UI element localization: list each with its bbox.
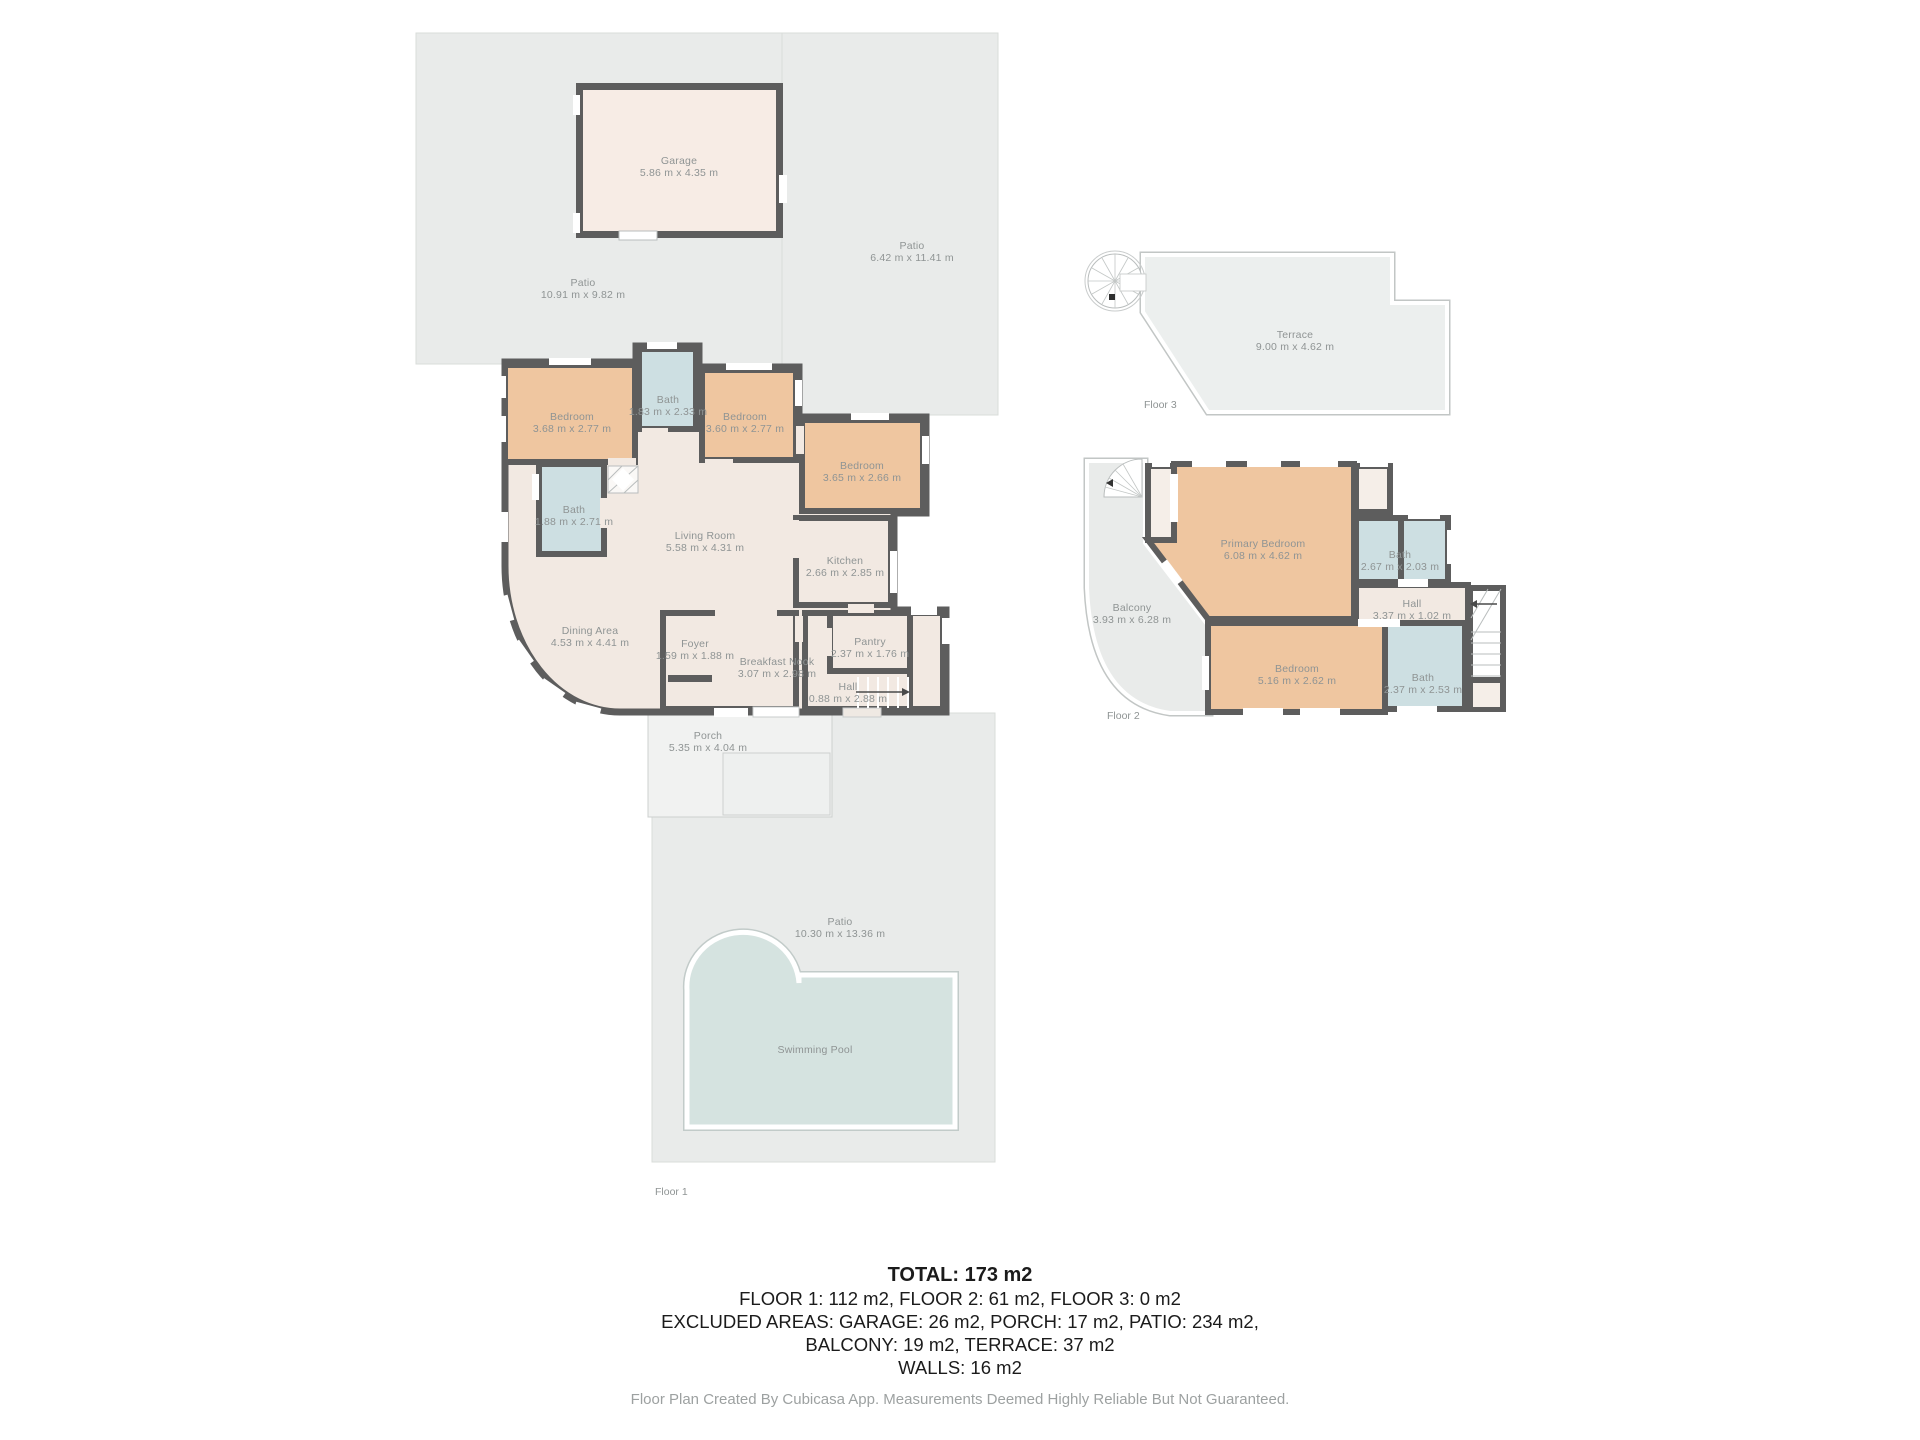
room-label-primary-bedroom: Primary Bedroom6.08 m x 4.62 m <box>1221 538 1306 562</box>
room-label-balcony: Balcony3.93 m x 6.28 m <box>1093 602 1171 626</box>
floor2-stairs <box>1468 588 1504 709</box>
room-label-kitchen: Kitchen2.66 m x 2.85 m <box>806 555 884 579</box>
room-label-dining-area: Dining Area4.53 m x 4.41 m <box>551 625 629 649</box>
room-label-hall: Hall0.88 m x 2.88 m <box>809 681 887 705</box>
floor2-caption: Floor 2 <box>1107 710 1140 722</box>
room-label-patio-ne: Patio6.42 m x 11.41 m <box>870 240 954 264</box>
closet-room <box>1356 466 1390 512</box>
disclaimer-text: Floor Plan Created By Cubicasa App. Meas… <box>0 1391 1920 1408</box>
room-label-bedroom2: Bedroom5.16 m x 2.62 m <box>1258 663 1336 687</box>
room-label-bath-w: Bath1.88 m x 2.71 m <box>535 504 613 528</box>
room-label-swimming-pool: Swimming Pool <box>778 1044 853 1056</box>
room-label-bath-upper: Bath2.67 m x 2.03 m <box>1361 549 1439 573</box>
room-label-bath-n: Bath1.83 m x 2.33 m <box>629 394 707 418</box>
floor1-plan <box>416 33 998 1162</box>
room-label-pantry: Pantry2.37 m x 1.76 m <box>831 636 909 660</box>
room-label-bath-lower: Bath2.37 m x 2.53 m <box>1384 672 1462 696</box>
summary-excluded: EXCLUDED AREAS: GARAGE: 26 m2, PORCH: 17… <box>0 1310 1920 1333</box>
room-label-terrace: Terrace9.00 m x 4.62 m <box>1256 329 1334 353</box>
spiral-staircase-icon <box>1085 251 1146 311</box>
room-label-hall2: Hall3.37 m x 1.02 m <box>1373 598 1451 622</box>
area-summary: TOTAL: 173 m2 FLOOR 1: 112 m2, FLOOR 2: … <box>0 1264 1920 1379</box>
patio-ne-area <box>782 33 998 415</box>
room-label-patio-s: Patio10.30 m x 13.36 m <box>795 916 885 940</box>
summary-total: TOTAL: 173 m2 <box>0 1264 1920 1287</box>
sliding-door <box>753 707 799 717</box>
room-label-bedroom-e: Bedroom3.65 m x 2.66 m <box>823 460 901 484</box>
porch-area <box>648 713 832 817</box>
front-door-opening <box>942 618 950 644</box>
room-label-porch: Porch5.35 m x 4.04 m <box>669 730 747 754</box>
room-label-patio-nw: Patio10.91 m x 9.82 m <box>541 277 625 301</box>
room-label-bedroom-n: Bedroom3.60 m x 2.77 m <box>706 411 784 435</box>
hatched-fixture <box>608 466 638 493</box>
floor3-caption: Floor 3 <box>1144 399 1177 411</box>
summary-floors: FLOOR 1: 112 m2, FLOOR 2: 61 m2, FLOOR 3… <box>0 1287 1920 1310</box>
summary-walls: WALLS: 16 m2 <box>0 1356 1920 1379</box>
floorplan-canvas: Garage5.86 m x 4.35 m Patio10.91 m x 9.8… <box>0 0 1920 1440</box>
room-label-bedroom-nw: Bedroom3.68 m x 2.77 m <box>533 411 611 435</box>
summary-excluded2: BALCONY: 19 m2, TERRACE: 37 m2 <box>0 1333 1920 1356</box>
room-label-garage: Garage5.86 m x 4.35 m <box>640 155 718 179</box>
room-label-foyer: Foyer1.59 m x 1.88 m <box>656 638 734 662</box>
bath-lower-room <box>1385 623 1465 709</box>
floor1-caption: Floor 1 <box>655 1186 688 1198</box>
room-label-breakfast-nook: Breakfast Nook3.07 m x 2.98 m <box>738 656 816 680</box>
floorplan-graphic <box>0 0 1920 1440</box>
room-label-living-room: Living Room5.58 m x 4.31 m <box>666 530 744 554</box>
